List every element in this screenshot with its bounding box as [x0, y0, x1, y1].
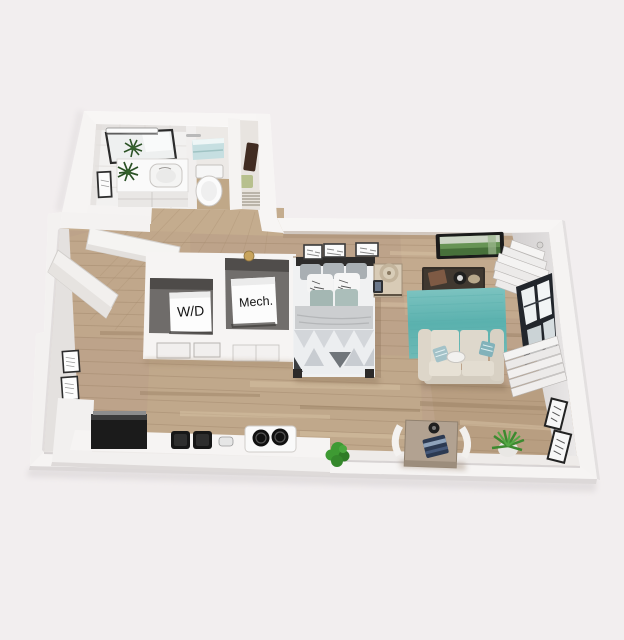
svg-text:Mech.: Mech.	[239, 294, 274, 310]
svg-text:W/D: W/D	[177, 302, 205, 319]
